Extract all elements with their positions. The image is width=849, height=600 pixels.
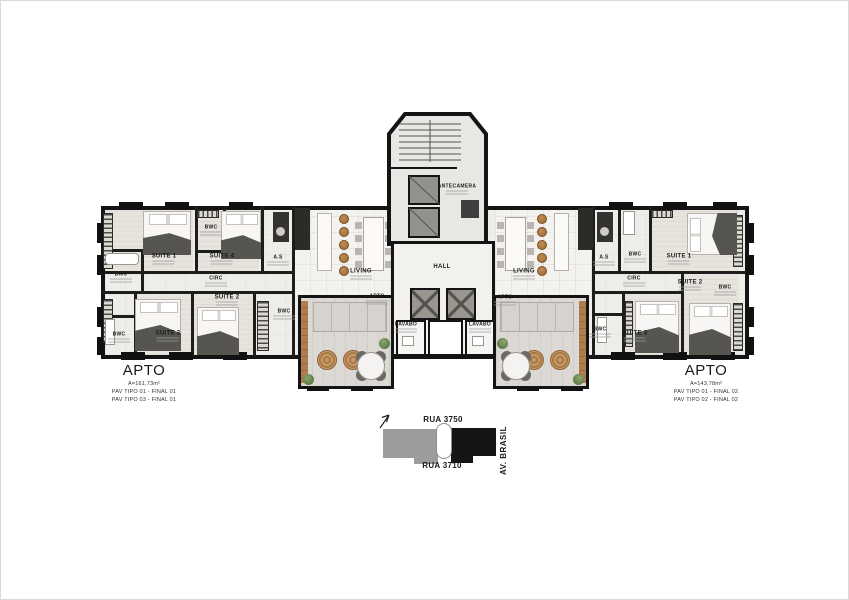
map-building-footprint [436, 423, 452, 459]
balcony-right-content [496, 298, 586, 386]
laundry-machines-left [273, 212, 289, 242]
wall-stub [609, 202, 633, 210]
bed-suite1-left [143, 211, 191, 255]
wall [101, 271, 295, 274]
apto-line-left-1: PAV TIPO 01 - FINAL 01 [92, 388, 196, 396]
wardrobe [197, 210, 219, 218]
patio-table [502, 352, 530, 380]
wall-stub [746, 337, 754, 355]
plant [573, 374, 584, 385]
location-map: RUA 3750 RUA 3710 AV. BRASIL [371, 409, 521, 479]
bar-stool [537, 253, 547, 263]
laundry-machines-right [597, 212, 613, 242]
wall [681, 273, 684, 357]
wood-wall [301, 301, 308, 383]
apartment-info-left: APTO A=161,73m² PAV TIPO 01 - FINAL 01 P… [92, 363, 196, 404]
kitchen-cabinets-left [295, 208, 310, 250]
balcony-left-content [301, 298, 391, 386]
sofa [500, 302, 574, 332]
bed-suite4-left [221, 211, 261, 259]
bed-suite2-right [689, 303, 731, 355]
bar-stool [339, 227, 349, 237]
elevator-shaft-right [446, 288, 476, 320]
wall [594, 271, 751, 274]
wall [191, 291, 194, 357]
bar-stool [339, 240, 349, 250]
lavabo-sink-left [402, 336, 414, 346]
wood-wall [579, 301, 586, 383]
bed-suite2-left [197, 307, 239, 355]
apto-area-right: A=143,78m² [654, 380, 758, 388]
pouf [317, 350, 337, 370]
wall [261, 206, 264, 273]
bar-stool [339, 214, 349, 224]
wardrobe [257, 301, 269, 351]
duct-shaft [428, 320, 463, 356]
wall-stub [663, 352, 687, 360]
wall-stub [121, 352, 145, 360]
balcony-left [298, 295, 394, 389]
wall-stub [746, 307, 754, 327]
wall-stub [663, 202, 687, 210]
plant [303, 374, 314, 385]
building-plan: A [1, 1, 849, 600]
pouf [550, 350, 570, 370]
apto-area-left: A=161,73m² [92, 380, 196, 388]
bar-stool [537, 266, 547, 276]
lavabo-sink-right [472, 336, 484, 346]
bar-stool [537, 227, 547, 237]
apto-line-left-2: PAV TIPO 03 - FINAL 01 [92, 396, 196, 404]
stair-tower [387, 112, 488, 246]
wardrobe [651, 210, 673, 218]
wardrobe [625, 301, 633, 347]
bed-suite1-right [687, 213, 737, 255]
patio-table [357, 352, 385, 380]
apto-title-left: APTO [92, 363, 196, 380]
elevator-shaft-left [410, 288, 440, 320]
kitchen-island-left [317, 213, 332, 271]
bathroom-fixture-left [105, 319, 115, 345]
wall [594, 313, 624, 316]
bar-stool [537, 214, 547, 224]
kitchen-cabinets-right [578, 208, 593, 250]
wall [253, 291, 256, 357]
wall-stub [119, 202, 143, 210]
wall-stub [169, 352, 193, 360]
avenue-label: AV. BRASIL [499, 417, 508, 475]
map-block-gray [383, 429, 438, 458]
bathtub-left [105, 253, 139, 265]
wall [618, 206, 621, 273]
wall-stub [611, 352, 635, 360]
bed-suite3-right [635, 301, 679, 353]
bathroom-fixture-right-bottom [597, 317, 607, 343]
balcony-right [493, 295, 589, 389]
wall [141, 249, 144, 293]
floorplan-sheet: A [0, 0, 849, 600]
bar-stool [339, 253, 349, 263]
wall-stub [746, 255, 754, 275]
apto-line-right-1: PAV TIPO 01 - FINAL 02 [654, 388, 758, 396]
apartment-info-right: APTO A=143,78m² PAV TIPO 01 - FINAL 02 P… [654, 363, 758, 404]
map-block-black [451, 428, 496, 456]
wardrobe [733, 303, 743, 351]
wall [594, 291, 684, 294]
apto-title-right: APTO [654, 363, 758, 380]
bar-stool [339, 266, 349, 276]
street-label-bottom: RUA 3710 [410, 461, 474, 470]
bar-stool [537, 240, 547, 250]
sofa [313, 302, 387, 332]
wall-stub [229, 202, 253, 210]
bed-suite3-left [135, 299, 181, 351]
bathroom-fixture-right-top [623, 211, 635, 235]
wall-stub [165, 202, 189, 210]
kitchen-island-right [554, 213, 569, 271]
north-arrow-icon [377, 412, 393, 430]
plant [497, 338, 508, 349]
central-core [391, 241, 495, 357]
wall-stub [713, 202, 737, 210]
plant [379, 338, 390, 349]
dining-table-left [363, 217, 384, 271]
wall-stub [746, 223, 754, 243]
apto-line-right-2: PAV TIPO 02 - FINAL 02 [654, 396, 758, 404]
dining-table-right [505, 217, 526, 271]
wall [101, 291, 295, 294]
